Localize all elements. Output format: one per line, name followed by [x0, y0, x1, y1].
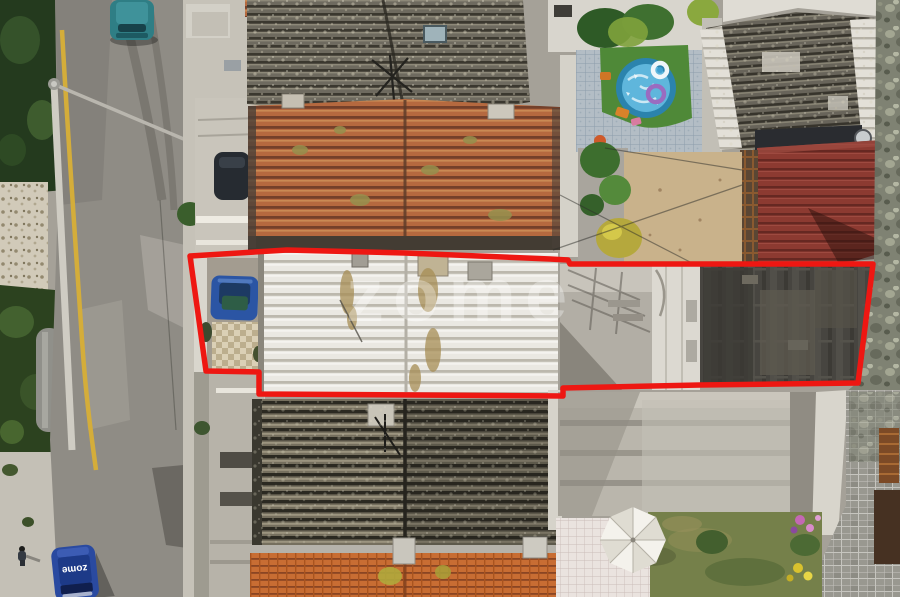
lattice-window-wall: [740, 150, 758, 262]
rear-patio: [560, 264, 655, 390]
moss-patch: [378, 567, 402, 585]
white-corrugated-roof: [258, 253, 558, 396]
bottom-right-block: [548, 390, 900, 597]
aerial-photo: zome: [0, 0, 900, 597]
garden-bush: [696, 530, 728, 554]
red-metal-roof: [757, 140, 893, 262]
white-wall-panel: [652, 263, 700, 390]
ac-unit: [224, 60, 241, 71]
roof-block: [468, 262, 492, 280]
aerial-photo-canvas: zome: [0, 0, 900, 597]
courtyard-tiled-patio: [212, 322, 262, 370]
terracotta-roof-lower: [250, 537, 560, 597]
mosaic-wall: [0, 182, 48, 302]
roof-block: [352, 254, 368, 267]
tan-terrace: [624, 152, 742, 262]
yellow-bush: [596, 218, 642, 258]
chimney: [282, 94, 304, 108]
dark-corrugated-roof-lower: [252, 399, 558, 546]
dark-doorway: [874, 490, 900, 564]
courtyard-blue-car: [210, 275, 259, 321]
chimney: [393, 538, 415, 564]
window-dark: [220, 452, 254, 468]
lounge-chair: [600, 72, 611, 80]
chimney: [488, 104, 514, 119]
terracotta-roof-upper: [248, 94, 560, 250]
mid-right-block: [560, 263, 873, 390]
covered-vehicle: [214, 152, 250, 200]
skylight: [424, 26, 446, 42]
parked-teal-car: [110, 0, 158, 46]
rust-ladder: [879, 428, 899, 483]
terrace-table: [554, 5, 572, 17]
pool-garden: [576, 0, 719, 152]
charcoal-flat-roof: [700, 264, 873, 387]
concrete-terrace: [558, 392, 830, 516]
chimney: [523, 537, 547, 558]
center-roofs: [245, 0, 560, 597]
